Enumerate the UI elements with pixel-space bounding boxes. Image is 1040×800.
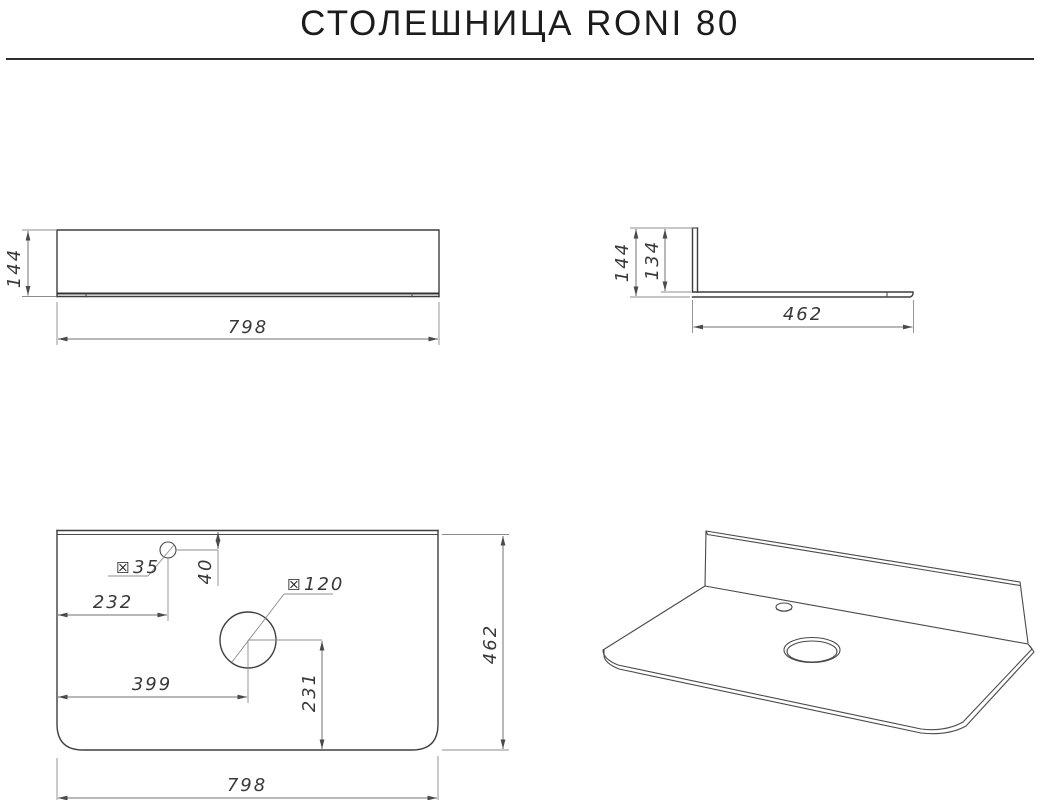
sink-offset-front-dimension: 231 bbox=[248, 640, 322, 749]
sink-diameter-label: 120 bbox=[304, 574, 344, 595]
sink-offset-left-dimension: 399 bbox=[58, 640, 248, 703]
top-width-label: 798 bbox=[227, 775, 267, 796]
drawing-canvas: 144 798 144 134 bbox=[0, 0, 1040, 800]
front-view: 144 798 bbox=[4, 230, 439, 345]
sink-offset-front-label: 231 bbox=[299, 672, 320, 712]
faucet-diameter-callout: ☒ 35 bbox=[108, 545, 174, 578]
faucet-diameter-label: 35 bbox=[133, 557, 160, 578]
top-width-dimension: 798 bbox=[57, 756, 438, 800]
side-view: 144 134 462 bbox=[612, 228, 914, 333]
top-view-outline bbox=[57, 531, 438, 751]
side-view-outline bbox=[693, 228, 914, 297]
side-height-label: 144 bbox=[612, 242, 633, 282]
front-view-outline bbox=[57, 230, 439, 297]
top-depth-dimension: 462 bbox=[442, 535, 509, 751]
diameter-symbol: ☒ bbox=[287, 576, 300, 594]
side-inner-height-dimension: 134 bbox=[642, 229, 691, 292]
sink-offset-left-label: 399 bbox=[132, 674, 172, 695]
diameter-symbol: ☒ bbox=[116, 559, 129, 577]
faucet-offset-back-dimension: 40 bbox=[176, 532, 218, 586]
side-depth-label: 462 bbox=[783, 304, 823, 325]
front-height-label: 144 bbox=[4, 248, 25, 288]
iso-sink-hole bbox=[784, 638, 840, 663]
front-width-dimension: 798 bbox=[57, 302, 439, 345]
front-width-label: 798 bbox=[228, 317, 268, 338]
top-depth-label: 462 bbox=[480, 624, 501, 664]
iso-slab bbox=[603, 586, 1034, 734]
faucet-hole bbox=[160, 542, 176, 558]
technical-drawing-page: СТОЛЕШНИЦА RONI 80 144 798 bbox=[0, 0, 1040, 800]
sink-diameter-callout: ☒ 120 bbox=[232, 574, 344, 662]
side-inner-height-label: 134 bbox=[642, 240, 663, 280]
front-height-dimension: 144 bbox=[4, 230, 56, 297]
faucet-offset-back-label: 40 bbox=[195, 558, 216, 585]
iso-view bbox=[603, 531, 1034, 734]
iso-faucet-hole bbox=[776, 603, 792, 611]
top-view: 40 ☒ 35 232 ☒ 120 399 bbox=[57, 531, 509, 800]
faucet-offset-left-label: 232 bbox=[93, 592, 133, 613]
iso-backsplash bbox=[705, 531, 1028, 644]
side-depth-dimension: 462 bbox=[693, 300, 914, 333]
